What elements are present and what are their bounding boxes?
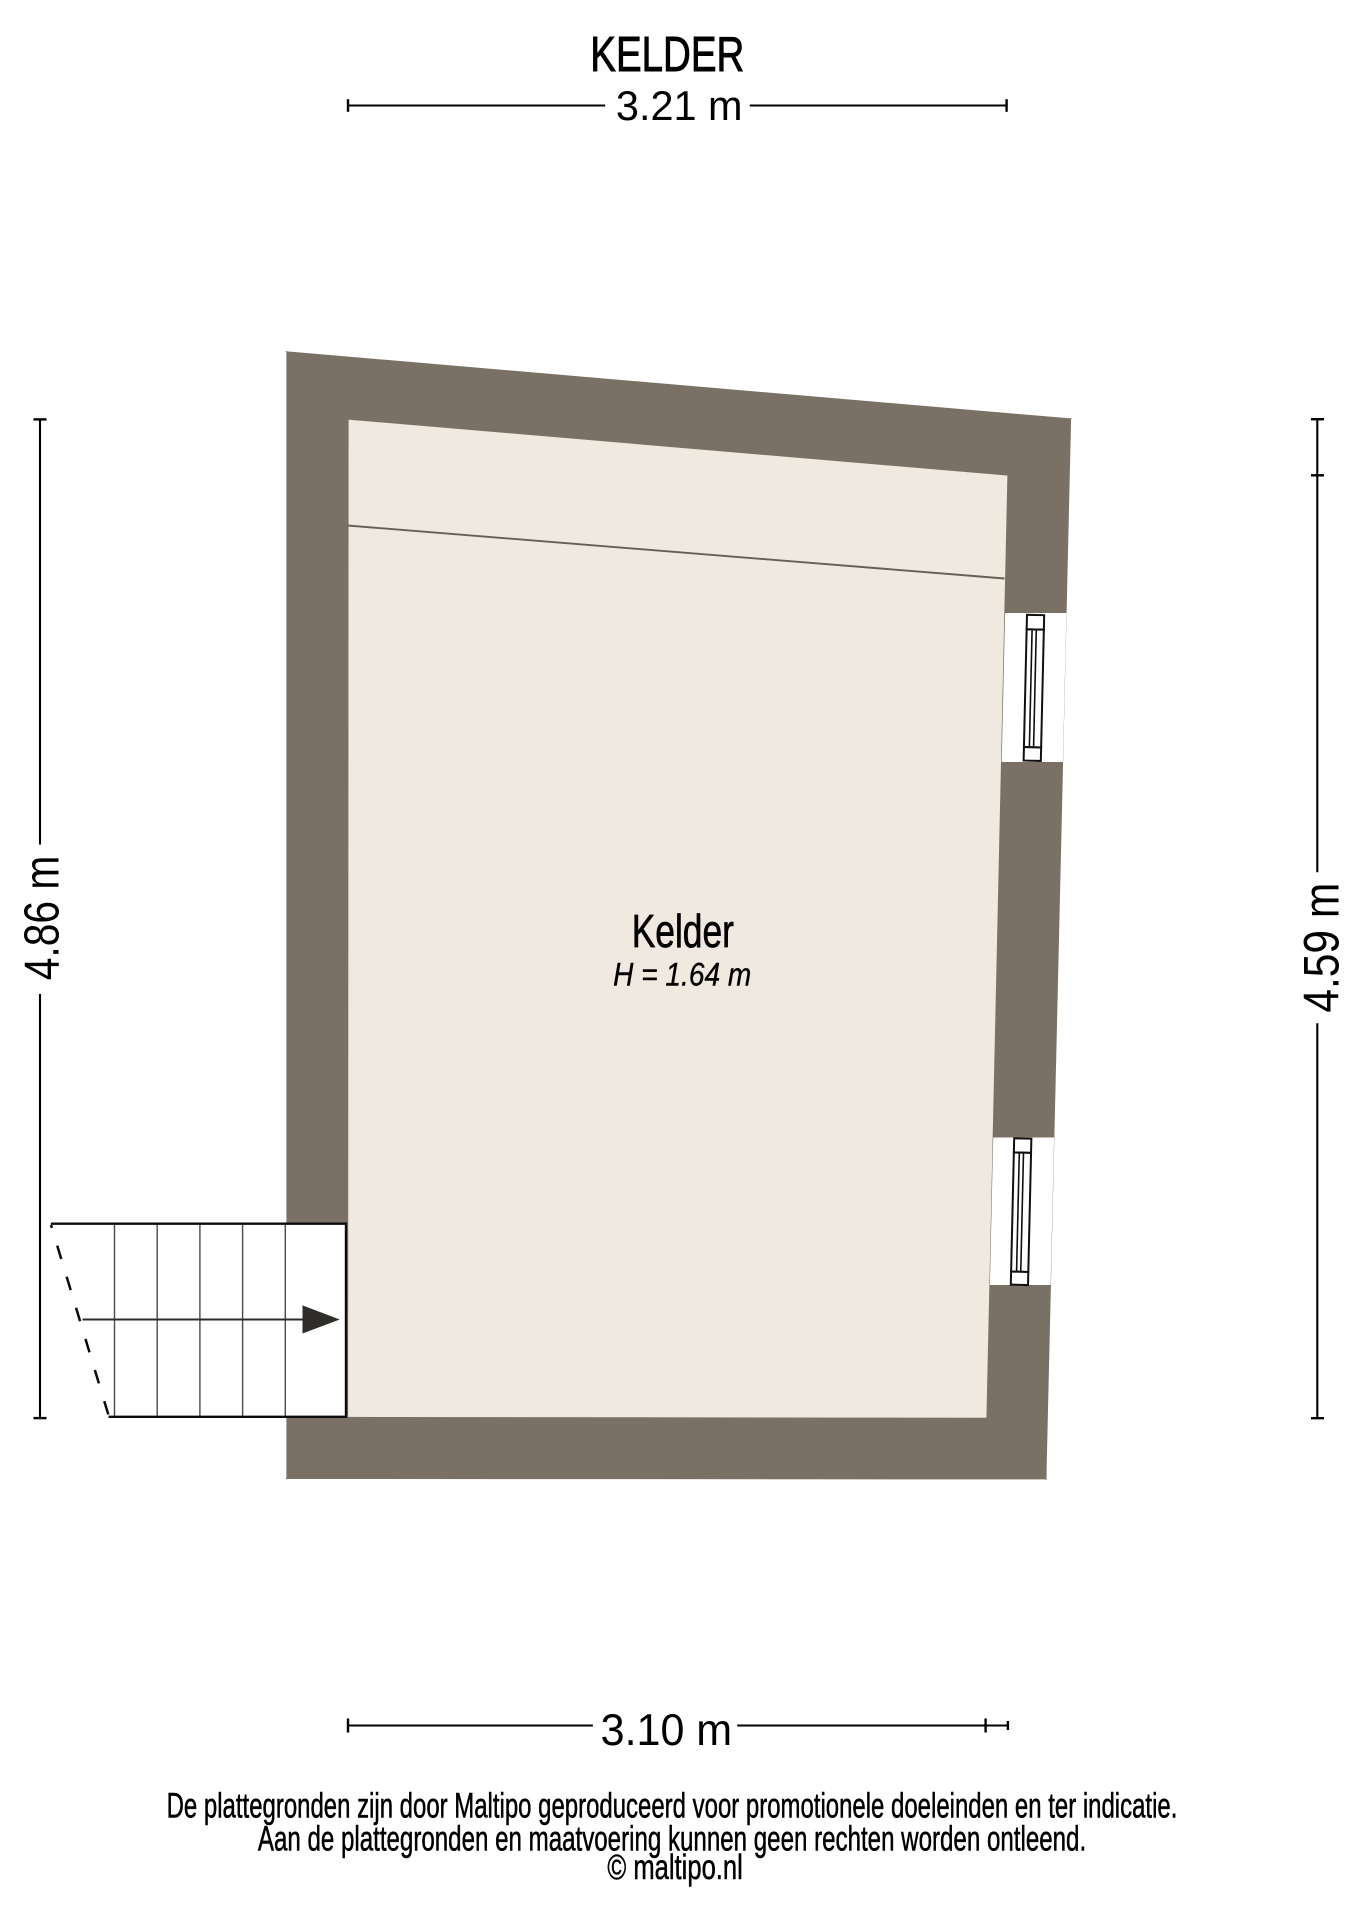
svg-text:3.21 m: 3.21 m xyxy=(616,82,743,129)
svg-text:H = 1.64 m: H = 1.64 m xyxy=(613,956,751,993)
svg-text:4.59 m: 4.59 m xyxy=(1293,883,1349,1013)
svg-text:Kelder: Kelder xyxy=(632,905,734,957)
svg-text:3.10 m: 3.10 m xyxy=(601,1705,732,1755)
svg-text:4.86 m: 4.86 m xyxy=(14,856,70,981)
svg-text:KELDER: KELDER xyxy=(590,28,744,83)
svg-text:© maltipo.nl: © maltipo.nl xyxy=(607,1848,742,1887)
